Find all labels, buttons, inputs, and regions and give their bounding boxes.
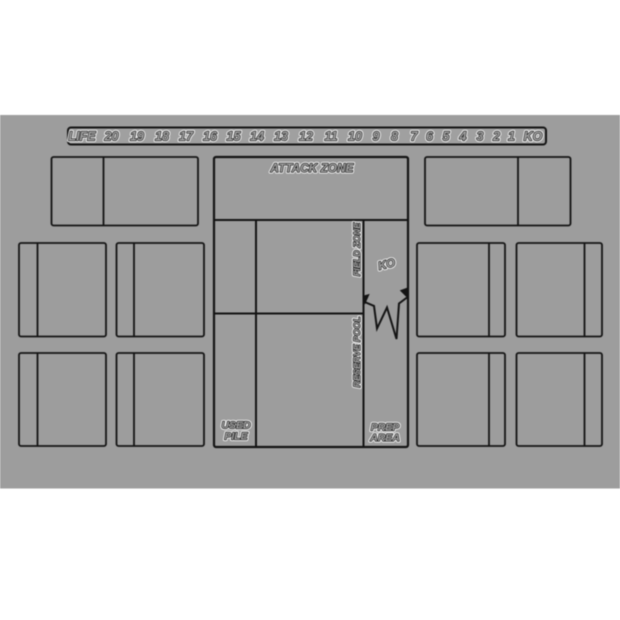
svg-text:20: 20 bbox=[104, 130, 119, 144]
svg-text:7: 7 bbox=[411, 130, 419, 144]
svg-text:1: 1 bbox=[508, 130, 515, 144]
svg-text:KO: KO bbox=[524, 130, 543, 144]
svg-text:10: 10 bbox=[348, 130, 362, 144]
svg-text:17: 17 bbox=[179, 130, 194, 144]
svg-text:13: 13 bbox=[274, 130, 288, 144]
svg-text:9: 9 bbox=[373, 130, 380, 144]
svg-text:LIFE: LIFE bbox=[68, 130, 96, 144]
svg-text:4: 4 bbox=[459, 130, 467, 144]
svg-text:18: 18 bbox=[155, 130, 169, 144]
svg-text:5: 5 bbox=[443, 130, 451, 144]
svg-text:8: 8 bbox=[391, 130, 398, 144]
svg-text:14: 14 bbox=[250, 130, 264, 144]
svg-text:19: 19 bbox=[130, 130, 144, 144]
svg-text:ATTACK ZONE: ATTACK ZONE bbox=[270, 163, 354, 175]
svg-text:AREA: AREA bbox=[369, 432, 400, 444]
svg-text:2: 2 bbox=[492, 130, 500, 144]
svg-text:16: 16 bbox=[203, 130, 218, 144]
svg-text:FIELD ZONE: FIELD ZONE bbox=[352, 222, 362, 276]
svg-text:15: 15 bbox=[227, 130, 242, 144]
svg-text:6: 6 bbox=[426, 130, 434, 144]
svg-text:RESERVE POOL: RESERVE POOL bbox=[352, 316, 362, 387]
svg-text:PILE: PILE bbox=[224, 431, 248, 443]
svg-text:3: 3 bbox=[477, 130, 484, 144]
svg-text:12: 12 bbox=[299, 130, 313, 144]
svg-text:11: 11 bbox=[325, 130, 338, 144]
